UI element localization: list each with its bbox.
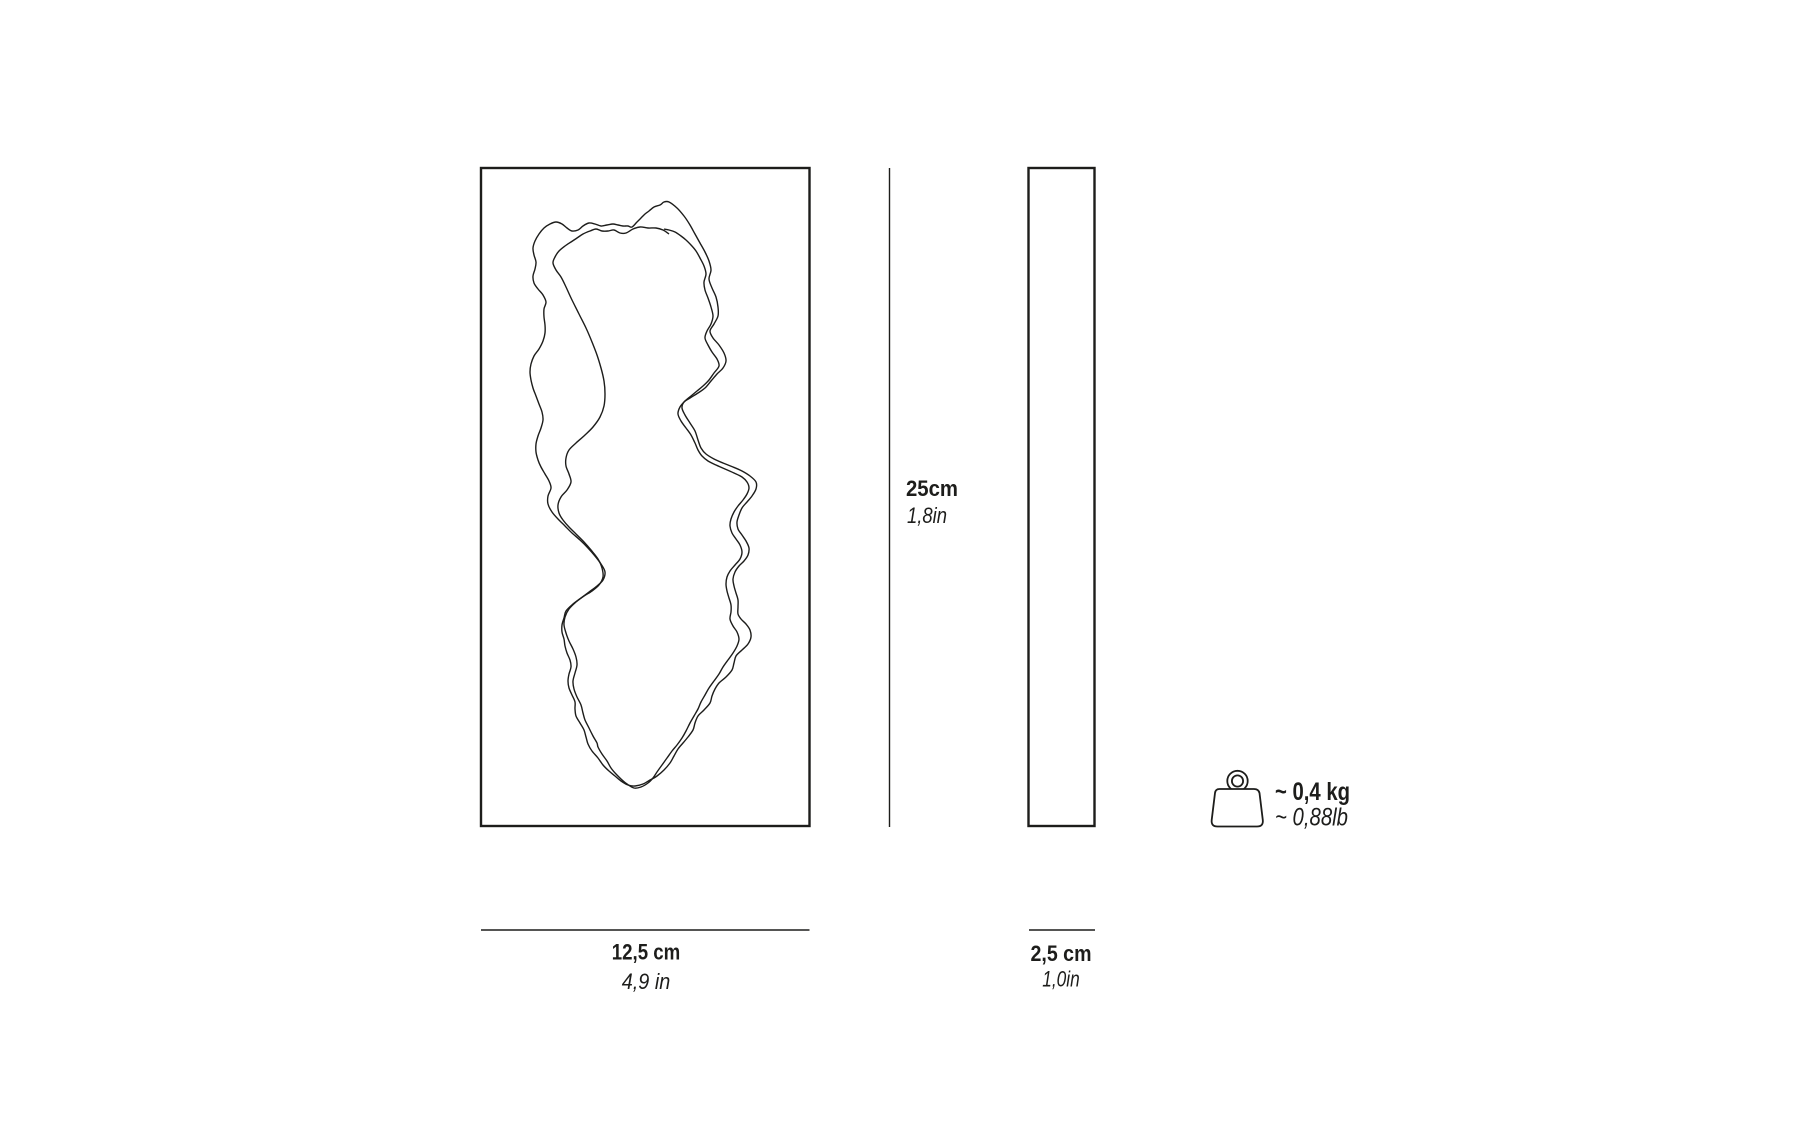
svg-text:1,8in: 1,8in [907,503,947,528]
svg-text:~ 0,4 kg: ~ 0,4 kg [1275,778,1350,806]
svg-text:12,5 cm: 12,5 cm [612,940,681,965]
svg-text:25cm: 25cm [906,476,958,501]
svg-text:~ 0,88lb: ~ 0,88lb [1275,804,1348,832]
svg-text:1,0in: 1,0in [1042,967,1080,992]
svg-text:4,9 in: 4,9 in [622,969,671,994]
svg-text:2,5 cm: 2,5 cm [1031,941,1092,966]
